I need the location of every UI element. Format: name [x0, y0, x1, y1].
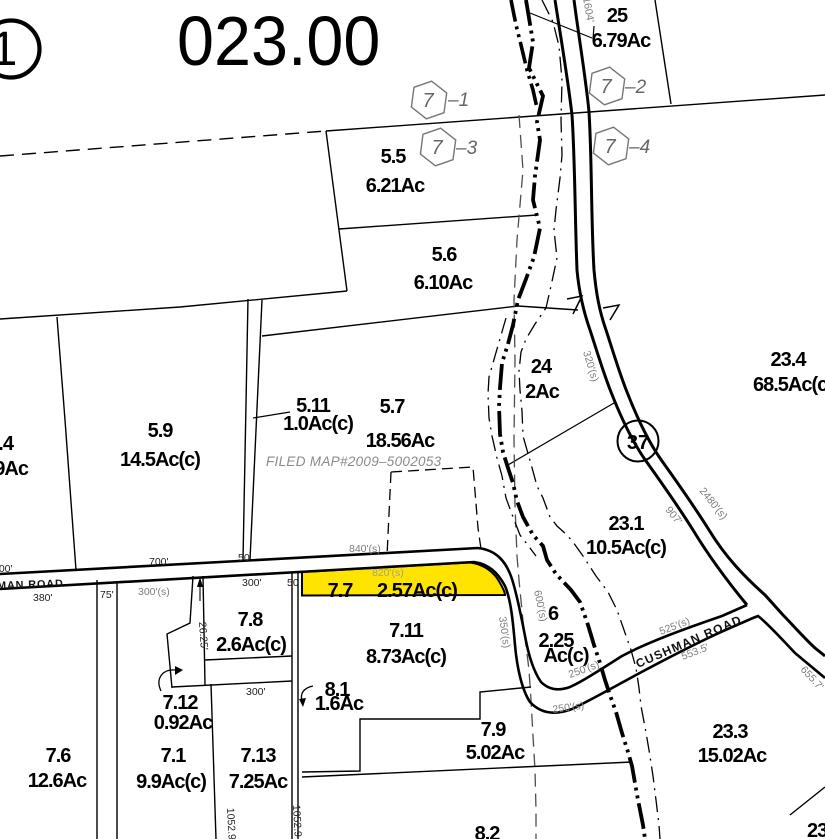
svg-text:9.9Ac(c): 9.9Ac(c) [136, 771, 206, 793]
svg-text:3.4: 3.4 [0, 433, 15, 455]
svg-text:50: 50 [287, 577, 299, 589]
svg-text:820'(s): 820'(s) [372, 567, 404, 579]
svg-text:5.02Ac: 5.02Ac [466, 742, 525, 764]
svg-text:7.1: 7.1 [161, 745, 187, 767]
svg-text:25: 25 [607, 5, 628, 27]
svg-text:10.5Ac(c): 10.5Ac(c) [586, 537, 666, 559]
svg-text:15.02Ac: 15.02Ac [698, 745, 767, 767]
svg-text:12.6Ac: 12.6Ac [28, 770, 87, 792]
svg-text:7: 7 [431, 137, 443, 159]
svg-text:2.6Ac(c): 2.6Ac(c) [216, 634, 286, 656]
svg-text:6.79Ac: 6.79Ac [592, 30, 651, 52]
svg-text:6.21Ac: 6.21Ac [366, 175, 425, 197]
svg-text:7.9: 7.9 [481, 719, 507, 741]
svg-text:24: 24 [531, 356, 553, 378]
svg-text:23.3: 23.3 [713, 721, 749, 743]
svg-text:1.0Ac(c): 1.0Ac(c) [283, 413, 353, 435]
svg-text:23: 23 [807, 820, 825, 839]
svg-text:5.9: 5.9 [148, 420, 174, 442]
svg-text:380': 380' [33, 592, 53, 604]
svg-text:400': 400' [0, 563, 13, 575]
svg-text:8.2: 8.2 [475, 823, 501, 839]
svg-text:1: 1 [0, 23, 17, 76]
svg-text:68.5Ac(c: 68.5Ac(c [753, 374, 825, 396]
svg-text:23.1: 23.1 [609, 513, 645, 535]
svg-text:12.9Ac: 12.9Ac [0, 458, 29, 480]
svg-text:18.56Ac: 18.56Ac [366, 430, 435, 452]
svg-text:300': 300' [246, 686, 266, 698]
svg-text:300'(s): 300'(s) [138, 586, 170, 598]
svg-text:7.6: 7.6 [46, 745, 72, 767]
svg-text:7: 7 [422, 90, 434, 112]
svg-text:6.10Ac: 6.10Ac [414, 272, 473, 294]
svg-text:7.25Ac: 7.25Ac [229, 771, 288, 793]
svg-text:7.7: 7.7 [328, 580, 354, 602]
svg-text:23.4: 23.4 [771, 349, 808, 371]
svg-text:7.13: 7.13 [241, 745, 277, 767]
svg-text:37: 37 [627, 432, 649, 454]
svg-text:0.92Ac: 0.92Ac [154, 712, 213, 734]
svg-text:–1: –1 [447, 90, 469, 111]
svg-text:FILED MAP#2009–5002053: FILED MAP#2009–5002053 [266, 454, 442, 469]
svg-text:8.73Ac(c): 8.73Ac(c) [366, 646, 446, 668]
svg-text:7.12: 7.12 [163, 692, 199, 714]
svg-text:1052.9: 1052.9 [224, 808, 238, 839]
svg-text:26.25': 26.25' [196, 621, 210, 650]
svg-text:–2: –2 [624, 77, 647, 98]
svg-text:7.8: 7.8 [238, 609, 264, 631]
svg-text:7: 7 [604, 136, 616, 158]
svg-text:7: 7 [600, 76, 612, 98]
svg-text:300': 300' [242, 577, 262, 589]
svg-text:1052.9: 1052.9 [290, 805, 304, 838]
svg-text:5.6: 5.6 [432, 244, 458, 266]
svg-text:–4: –4 [628, 137, 650, 158]
svg-text:1.6Ac: 1.6Ac [315, 693, 364, 715]
svg-text:2.57Ac(c): 2.57Ac(c) [377, 580, 457, 602]
svg-text:700': 700' [149, 556, 169, 568]
svg-text:7.11: 7.11 [389, 620, 424, 642]
svg-text:–3: –3 [455, 138, 478, 159]
svg-text:6: 6 [548, 603, 559, 625]
svg-text:5.5: 5.5 [381, 146, 407, 168]
svg-text:840'(s): 840'(s) [349, 543, 381, 555]
svg-text:75': 75' [100, 589, 114, 601]
svg-text:50: 50 [238, 552, 250, 564]
svg-text:2Ac: 2Ac [525, 381, 560, 403]
svg-text:5.7: 5.7 [380, 396, 406, 418]
svg-text:023.00: 023.00 [177, 2, 380, 80]
svg-text:14.5Ac(c): 14.5Ac(c) [120, 449, 200, 471]
